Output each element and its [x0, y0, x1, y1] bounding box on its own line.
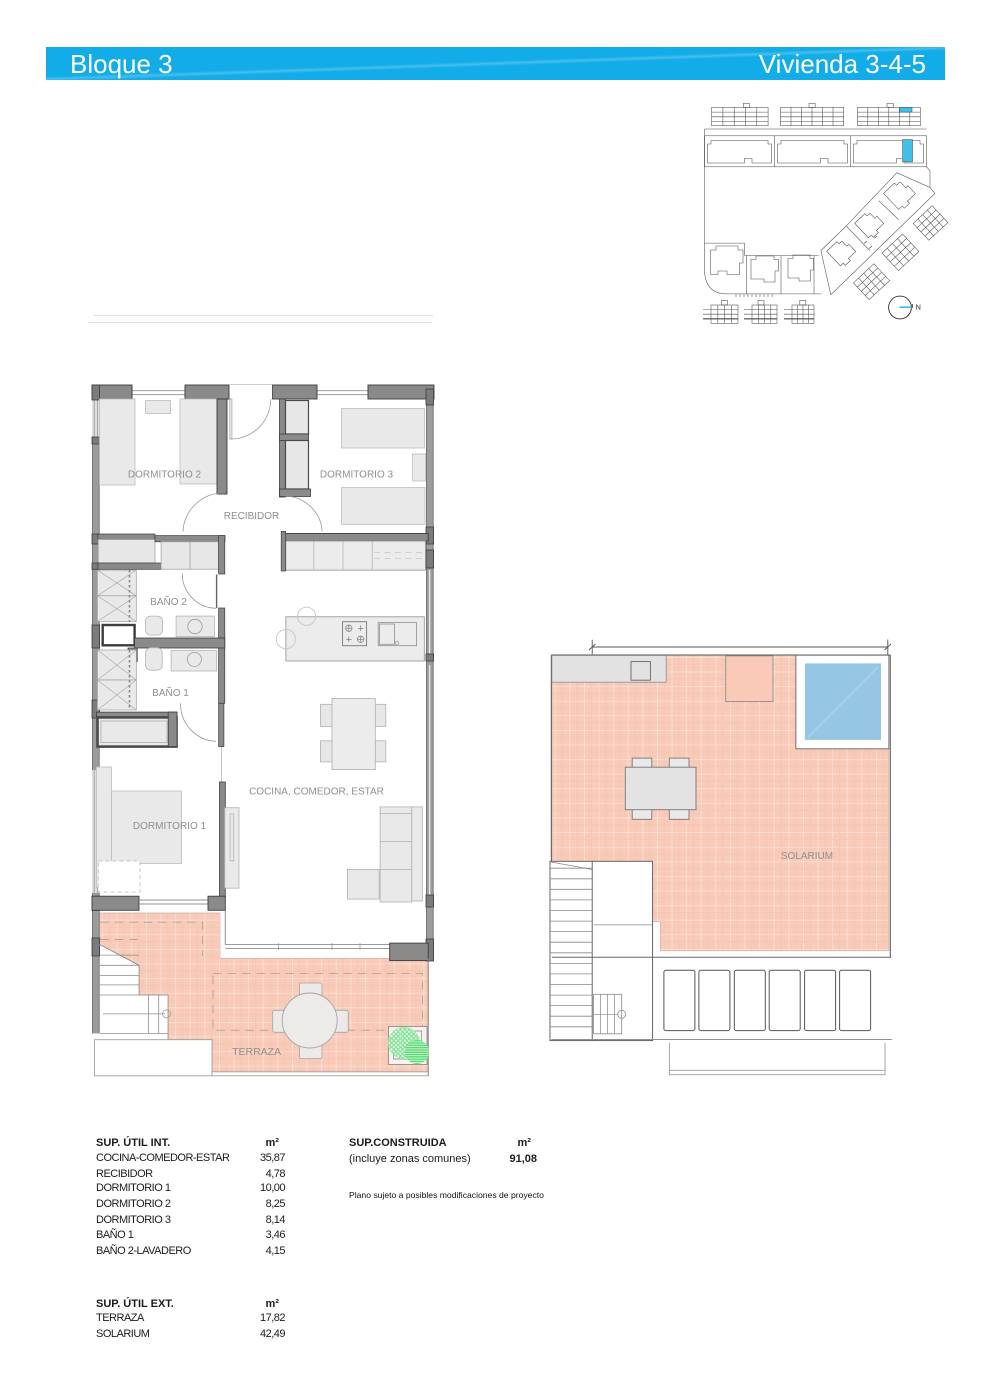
svg-text:N: N — [916, 303, 921, 312]
svg-text:BAÑO 1: BAÑO 1 — [152, 686, 189, 699]
svg-text:DORMITORIO 2: DORMITORIO 2 — [128, 470, 202, 481]
svg-text:RECIBIDOR: RECIBIDOR — [224, 511, 280, 522]
svg-text:TERRAZA: TERRAZA — [232, 1046, 281, 1058]
svg-text:DORMITORIO 1: DORMITORIO 1 — [133, 821, 207, 832]
svg-text:DORMITORIO 3: DORMITORIO 3 — [320, 470, 394, 481]
svg-text:SOLARIUM: SOLARIUM — [781, 851, 833, 862]
svg-text:BAÑO 2: BAÑO 2 — [150, 595, 187, 608]
svg-text:COCINA, COMEDOR, ESTAR: COCINA, COMEDOR, ESTAR — [249, 787, 384, 798]
